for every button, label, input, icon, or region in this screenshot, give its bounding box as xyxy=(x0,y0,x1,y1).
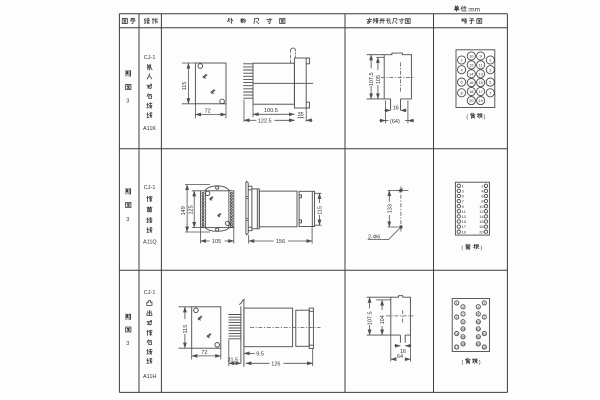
svg-text:3: 3 xyxy=(126,217,129,223)
svg-text:11: 11 xyxy=(455,332,458,336)
svg-text:72: 72 xyxy=(201,350,207,356)
svg-text:122.5: 122.5 xyxy=(258,119,272,125)
svg-text:13: 13 xyxy=(478,71,483,76)
svg-text:19: 19 xyxy=(478,98,483,103)
svg-text:CJ-1: CJ-1 xyxy=(144,55,156,61)
svg-text:): ) xyxy=(479,360,481,366)
svg-text:(: ( xyxy=(466,115,468,121)
svg-text:A11H: A11H xyxy=(143,374,156,380)
svg-text:149: 149 xyxy=(181,206,187,215)
svg-text:14: 14 xyxy=(477,327,481,331)
svg-text:(: ( xyxy=(462,360,464,366)
svg-text:16: 16 xyxy=(469,80,474,85)
svg-text:20: 20 xyxy=(477,342,481,346)
svg-text:13: 13 xyxy=(461,327,465,331)
svg-text:156: 156 xyxy=(276,239,285,245)
svg-text:9.5: 9.5 xyxy=(256,352,264,358)
svg-text:): ) xyxy=(484,115,486,121)
svg-text:10: 10 xyxy=(469,54,474,59)
svg-text:(: ( xyxy=(461,246,463,252)
svg-text:18: 18 xyxy=(469,89,474,94)
svg-text:18: 18 xyxy=(483,345,487,349)
svg-text:107.5: 107.5 xyxy=(368,311,374,325)
svg-text:CJ-1: CJ-1 xyxy=(144,185,156,191)
svg-text:): ) xyxy=(480,246,482,252)
svg-text:16: 16 xyxy=(393,105,399,111)
svg-text:CJ-1: CJ-1 xyxy=(144,290,156,296)
svg-text:115: 115 xyxy=(183,325,189,334)
svg-text:115: 115 xyxy=(318,206,324,215)
svg-text:(64): (64) xyxy=(390,119,400,125)
svg-text:12: 12 xyxy=(469,63,474,68)
svg-text:3: 3 xyxy=(126,341,129,347)
svg-text:133: 133 xyxy=(387,204,393,213)
svg-text:35: 35 xyxy=(298,112,304,118)
svg-text:10: 10 xyxy=(477,320,481,324)
svg-text:14: 14 xyxy=(469,71,474,76)
svg-text:72: 72 xyxy=(205,108,211,114)
svg-text:126: 126 xyxy=(271,361,280,367)
svg-text::mm: :mm xyxy=(468,6,480,13)
svg-text:17: 17 xyxy=(455,345,459,349)
svg-text:115: 115 xyxy=(182,82,188,91)
svg-text:105: 105 xyxy=(212,239,221,245)
svg-text:64: 64 xyxy=(397,354,403,360)
svg-text:15: 15 xyxy=(461,335,465,339)
svg-text:107.5: 107.5 xyxy=(369,72,375,86)
svg-text:12: 12 xyxy=(483,332,487,336)
svg-text:19: 19 xyxy=(462,229,466,234)
svg-text:100.5: 100.5 xyxy=(264,108,278,114)
svg-text:A11K: A11K xyxy=(143,126,156,132)
svg-text:31.5: 31.5 xyxy=(228,357,239,363)
svg-text:105: 105 xyxy=(376,75,382,84)
svg-text:104: 104 xyxy=(380,315,386,324)
svg-text:15: 15 xyxy=(478,80,483,85)
svg-text:125: 125 xyxy=(188,205,194,214)
svg-text:16: 16 xyxy=(477,335,481,339)
svg-text:3: 3 xyxy=(126,98,129,104)
svg-text:19: 19 xyxy=(461,342,465,346)
svg-text:17: 17 xyxy=(478,89,483,94)
svg-text:A11Q: A11Q xyxy=(143,239,157,245)
svg-text:20: 20 xyxy=(469,98,474,103)
